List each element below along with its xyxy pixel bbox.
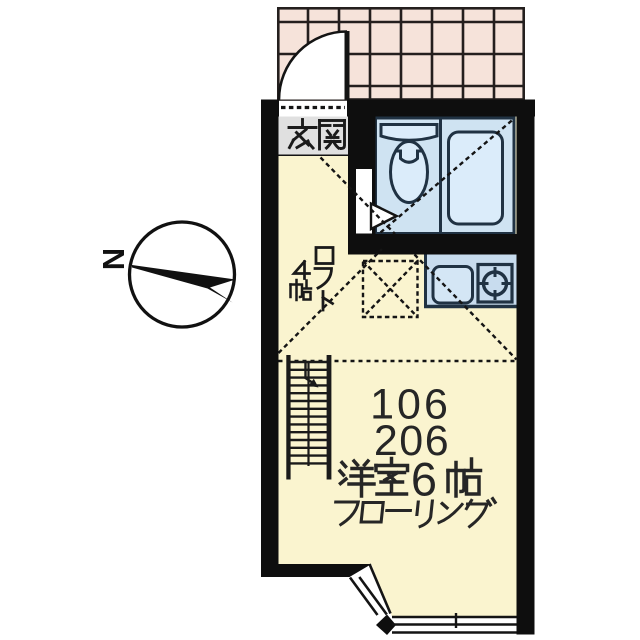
svg-text:N: N bbox=[96, 248, 131, 270]
svg-text:6: 6 bbox=[411, 453, 437, 506]
